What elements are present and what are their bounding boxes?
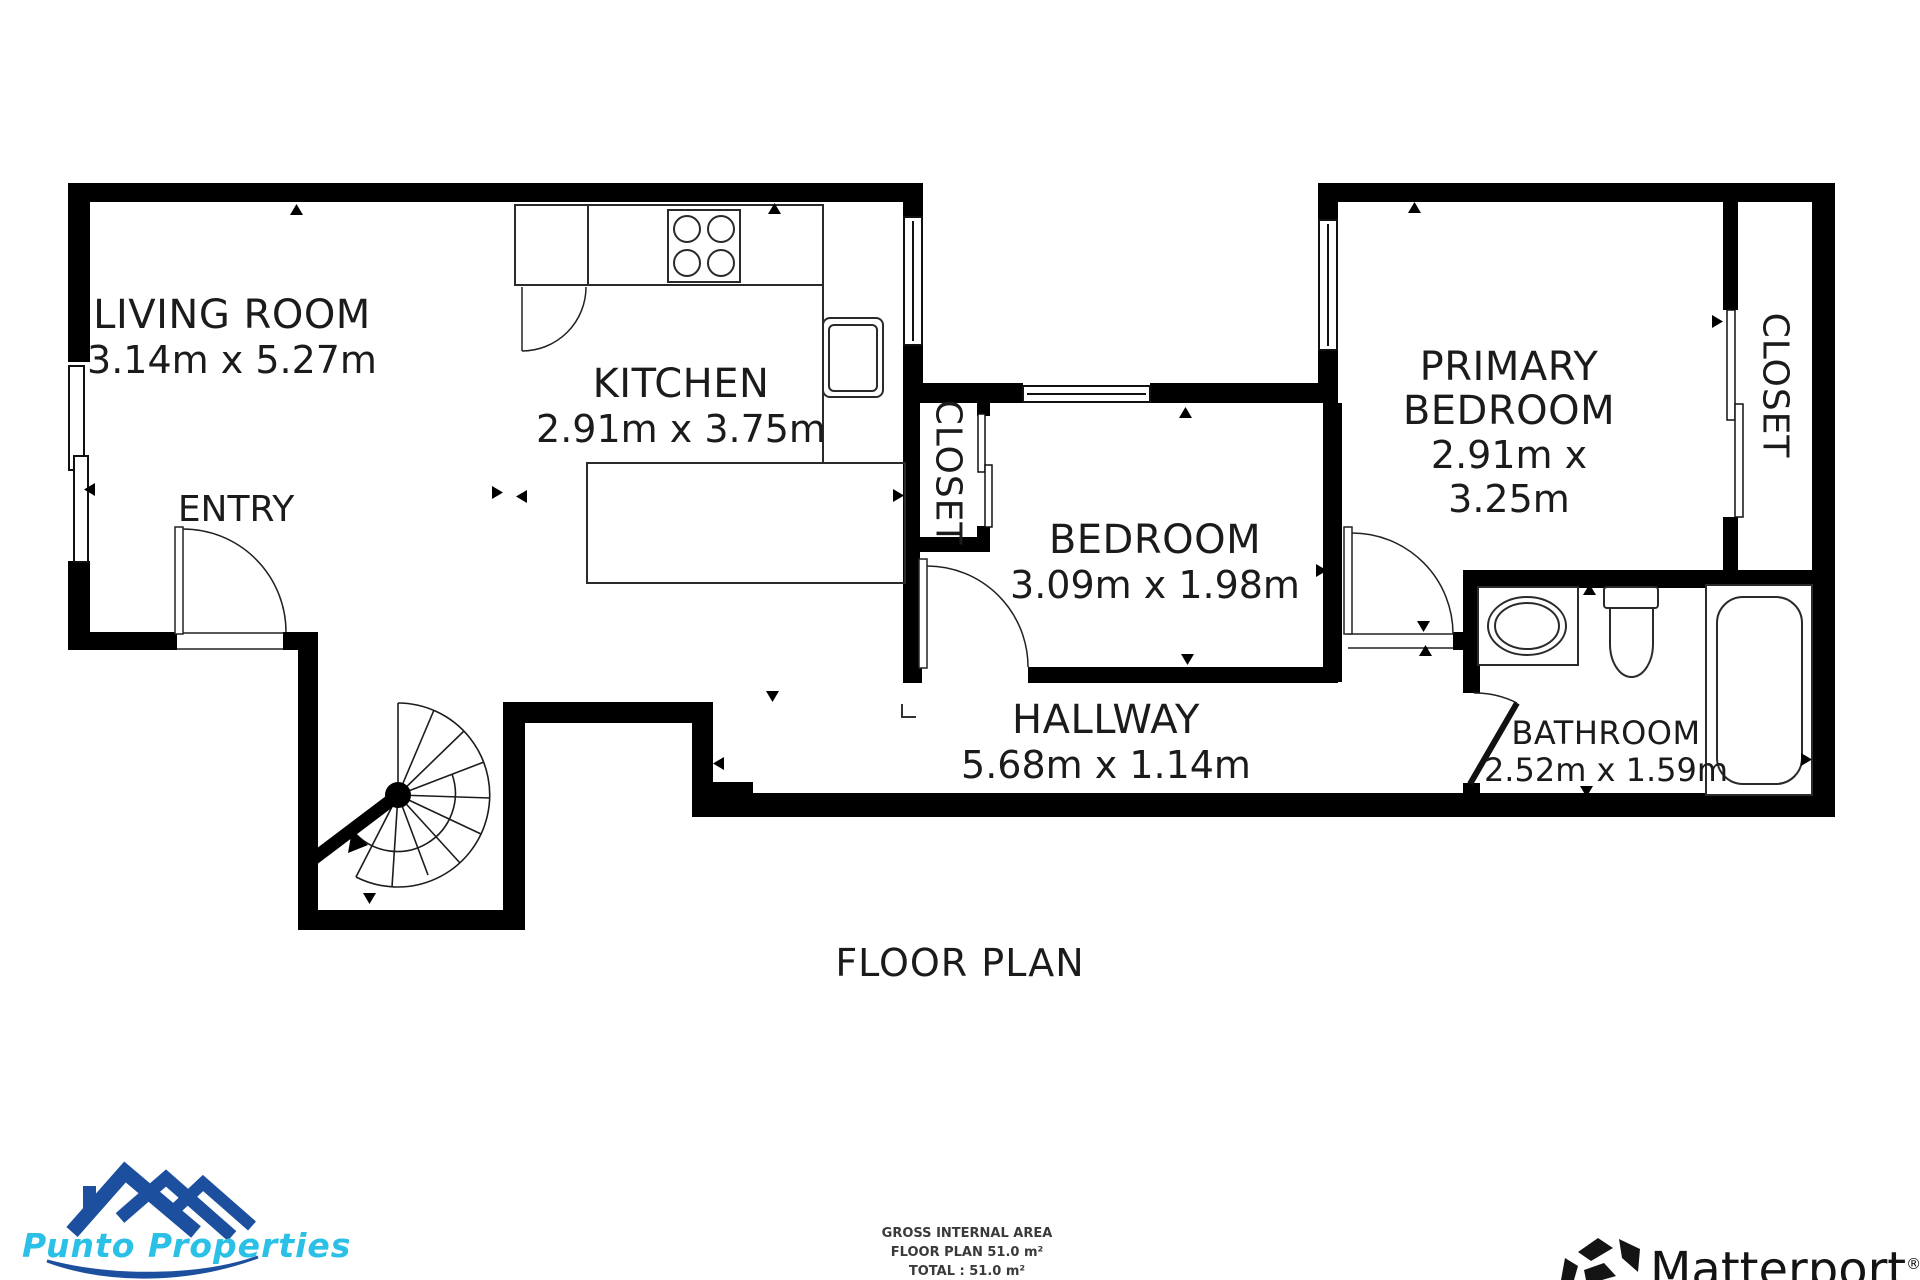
page-title: FLOOR PLAN bbox=[760, 941, 1160, 985]
marker-up-icon bbox=[1419, 645, 1432, 656]
door-thresholds bbox=[177, 633, 1453, 649]
floor-plan-drawing bbox=[0, 0, 1920, 1280]
room-dims: 5.68m x 1.14m bbox=[926, 743, 1286, 787]
spiral-stairs-icon bbox=[312, 703, 490, 887]
room-name: BATHROOM bbox=[1456, 715, 1756, 752]
floor-plan-page: LIVING ROOM 3.14m x 5.27m KITCHEN 2.91m … bbox=[0, 0, 1920, 1280]
marker-down-icon bbox=[1417, 621, 1430, 632]
marker-down-icon bbox=[363, 893, 376, 904]
room-name: KITCHEN bbox=[501, 361, 861, 407]
primary-bedroom-door-icon bbox=[1344, 527, 1453, 634]
registered-mark: ® bbox=[1906, 1255, 1920, 1273]
room-label-bedroom: BEDROOM 3.09m x 1.98m bbox=[975, 517, 1335, 607]
marker-right-icon bbox=[1712, 315, 1723, 328]
stove-icon bbox=[668, 210, 740, 282]
room-dims: 2.91m x 3.25m bbox=[1374, 433, 1644, 521]
marker-up-icon bbox=[1179, 407, 1192, 418]
matterport-wordmark: Matterport® bbox=[1650, 1246, 1920, 1280]
marker-up-icon bbox=[1408, 202, 1421, 213]
room-dims: 2.52m x 1.59m bbox=[1456, 752, 1756, 788]
closet-label-text: CLOSET bbox=[928, 399, 969, 545]
floor-plan-area-line: FLOOR PLAN 51.0 m² bbox=[767, 1243, 1167, 1262]
marker-right-icon bbox=[492, 486, 503, 499]
room-label-living-room: LIVING ROOM 3.14m x 5.27m bbox=[52, 292, 412, 382]
matterport-name: Matterport bbox=[1650, 1242, 1906, 1280]
kitchen-island-icon bbox=[587, 463, 905, 583]
toilet-icon bbox=[1604, 587, 1658, 677]
kitchen-cabinet-door-icon bbox=[522, 287, 586, 351]
room-dims: 3.14m x 5.27m bbox=[52, 338, 412, 382]
area-summary: GROSS INTERNAL AREA FLOOR PLAN 51.0 m² T… bbox=[767, 1224, 1167, 1280]
window-living-panel-icon bbox=[74, 456, 88, 562]
room-name: HALLWAY bbox=[926, 697, 1286, 743]
marker-down-icon bbox=[766, 691, 779, 702]
marker-left-icon bbox=[516, 490, 527, 503]
room-label-closet-left: CLOSET bbox=[898, 412, 998, 532]
room-name: BEDROOM bbox=[975, 517, 1335, 563]
gross-internal-area-line: GROSS INTERNAL AREA bbox=[767, 1224, 1167, 1243]
entry-door-icon bbox=[175, 527, 286, 634]
room-label-entry: ENTRY bbox=[136, 489, 336, 531]
room-label-bathroom: BATHROOM 2.52m x 1.59m bbox=[1456, 715, 1756, 788]
marker-up-icon bbox=[290, 204, 303, 215]
punto-properties-wordmark: Punto Properties bbox=[22, 1226, 351, 1265]
total-area-line: TOTAL : 51.0 m² bbox=[767, 1262, 1167, 1280]
room-label-hallway: HALLWAY 5.68m x 1.14m bbox=[926, 697, 1286, 787]
marker-down-icon bbox=[1181, 654, 1194, 665]
marker-left-icon bbox=[713, 757, 724, 770]
room-dims: 3.09m x 1.98m bbox=[975, 563, 1335, 607]
matterport-logo-icon bbox=[1561, 1238, 1640, 1280]
room-dims: 2.91m x 3.75m bbox=[501, 407, 861, 451]
closet-label-text: CLOSET bbox=[1755, 312, 1796, 458]
room-label-primary-bedroom: PRIMARY BEDROOM 2.91m x 3.25m bbox=[1374, 345, 1644, 521]
hallway-corner-mark-icon bbox=[902, 704, 916, 717]
room-name: PRIMARY BEDROOM bbox=[1374, 345, 1644, 433]
room-name: LIVING ROOM bbox=[52, 292, 412, 338]
bathroom-sink-icon bbox=[1478, 587, 1578, 665]
room-label-closet-right: CLOSET bbox=[1725, 325, 1825, 445]
room-label-kitchen: KITCHEN 2.91m x 3.75m bbox=[501, 361, 861, 451]
